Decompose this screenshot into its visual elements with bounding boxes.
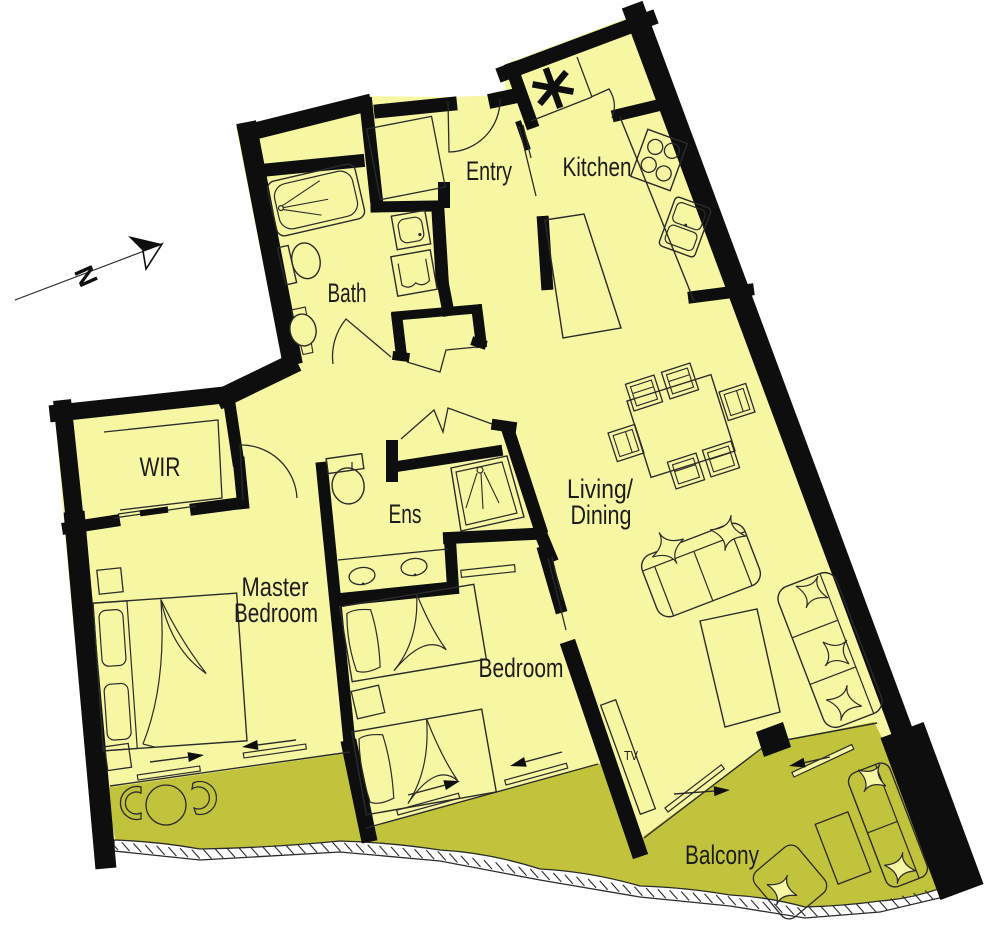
svg-text:WIR: WIR xyxy=(140,452,181,482)
svg-text:Ens: Ens xyxy=(389,499,422,529)
svg-text:Bedroom: Bedroom xyxy=(479,653,564,683)
svg-text:N: N xyxy=(68,261,103,291)
svg-text:TV: TV xyxy=(624,748,638,763)
svg-text:Bath: Bath xyxy=(328,278,367,308)
svg-text:Dining: Dining xyxy=(571,500,632,530)
svg-text:Kitchen: Kitchen xyxy=(563,152,632,182)
svg-text:Entry: Entry xyxy=(466,156,513,186)
svg-text:Balcony: Balcony xyxy=(685,840,760,870)
svg-text:Bedroom: Bedroom xyxy=(234,598,318,628)
